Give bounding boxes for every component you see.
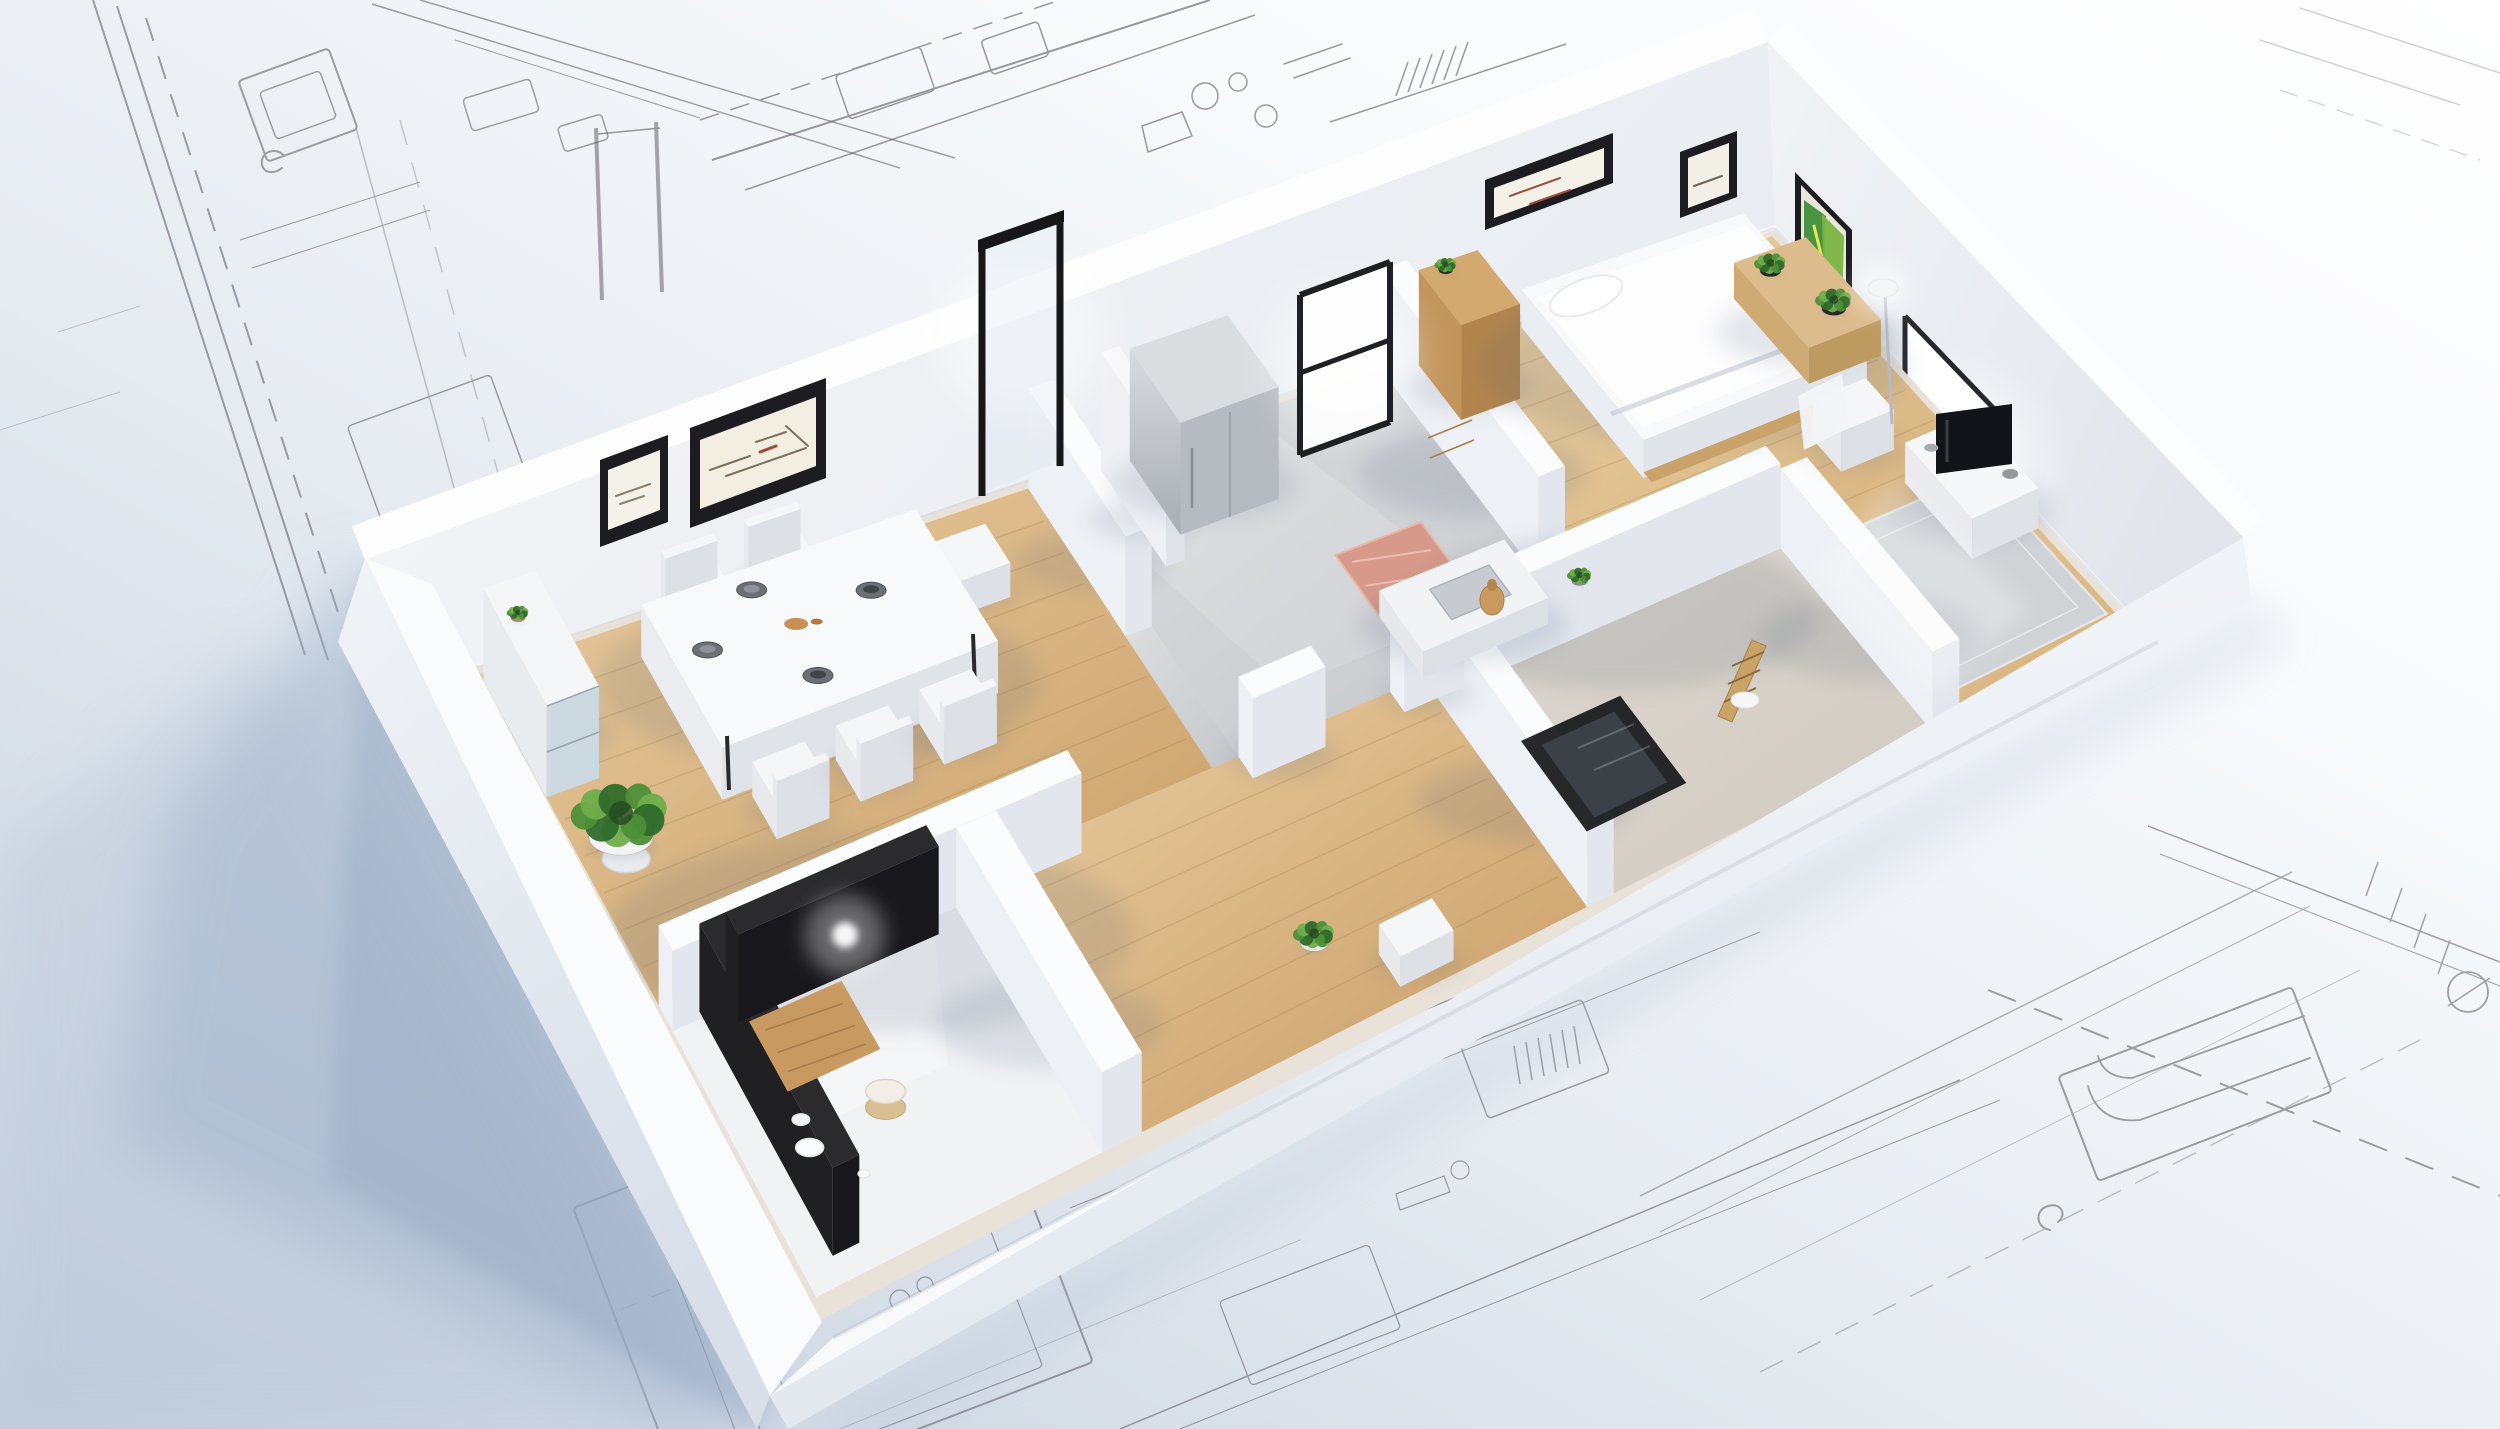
bath-stool-top <box>866 1079 906 1103</box>
table-leg <box>727 736 729 790</box>
dining-chair-bottom-3-back <box>940 700 944 765</box>
dining-chair-bottom-2-back <box>856 737 860 802</box>
blueprint-floorplan-render <box>0 0 2500 1429</box>
toilet-base <box>796 1139 824 1157</box>
plate-food <box>810 670 826 678</box>
console-object <box>2002 469 2018 479</box>
bench-plant-1-leaf-core <box>1767 259 1775 267</box>
bench-plant-2-leaf-core <box>1829 295 1838 304</box>
wall-living-kitchen <box>1126 526 1152 636</box>
hallway-plant-leaf-core <box>1309 928 1319 938</box>
bedroom-door-plant-leaf-core <box>1577 572 1583 578</box>
ladder-cloth <box>1731 692 1759 708</box>
counter-vase-neck <box>1487 579 1497 591</box>
plate-food <box>863 585 879 593</box>
bathroom-spotlight <box>832 922 858 948</box>
toilet-tank <box>792 1114 810 1126</box>
living-room-plant-leaf-core <box>609 801 633 825</box>
plate-food <box>744 585 760 593</box>
plate-food <box>699 645 715 653</box>
entry-door-glass <box>985 220 1057 492</box>
console-object <box>1924 444 1938 452</box>
floor-lamp-glow <box>1857 262 1909 314</box>
bath-bottle <box>858 1170 870 1178</box>
dresser-plant-leaf-core <box>1443 262 1448 267</box>
dining-chair-bottom-1-back <box>773 774 777 839</box>
cabinet-plant-leaf-core <box>515 610 520 615</box>
scene-svg <box>0 0 2500 1429</box>
bread-centerpiece-2 <box>811 619 823 625</box>
shower-frame-side <box>833 1155 860 1256</box>
bread-centerpiece <box>784 618 808 630</box>
